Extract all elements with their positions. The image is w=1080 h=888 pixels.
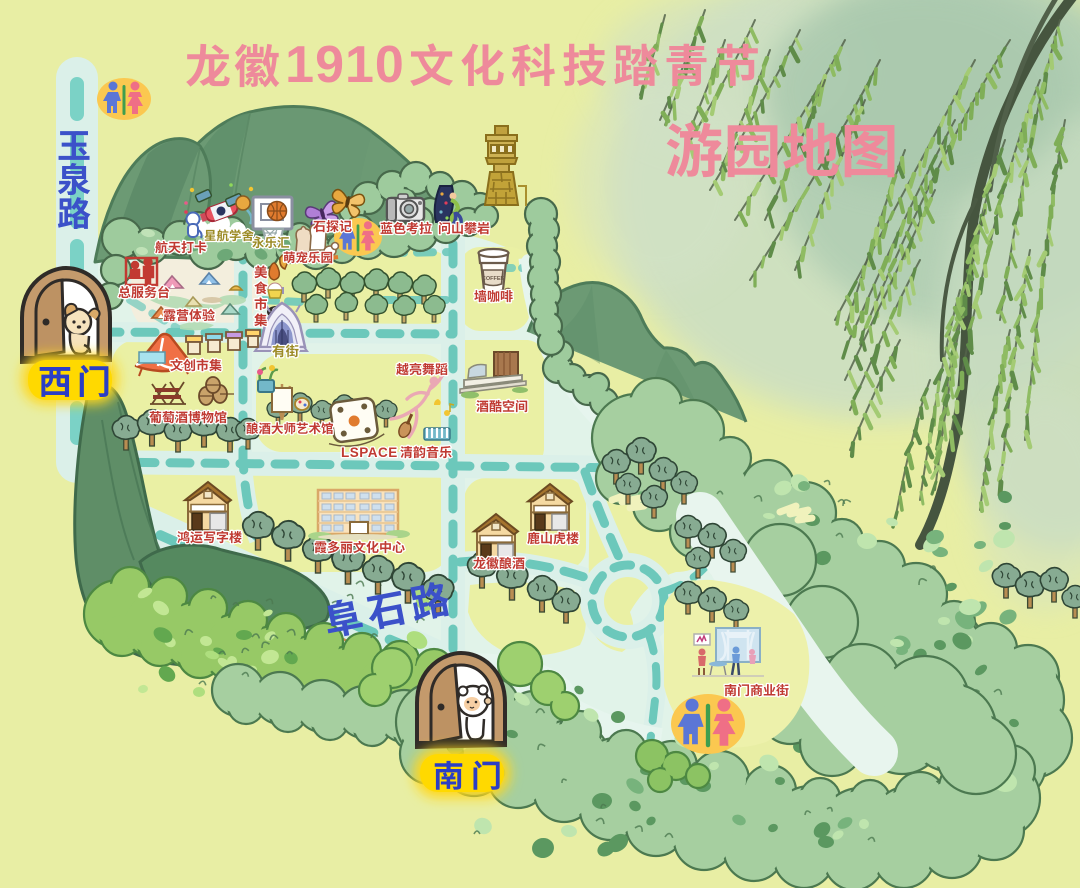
svg-text:1910: 1910	[285, 36, 405, 94]
svg-text:LSPACE: LSPACE	[341, 445, 398, 460]
svg-text:COFFEE: COFFEE	[482, 276, 505, 282]
